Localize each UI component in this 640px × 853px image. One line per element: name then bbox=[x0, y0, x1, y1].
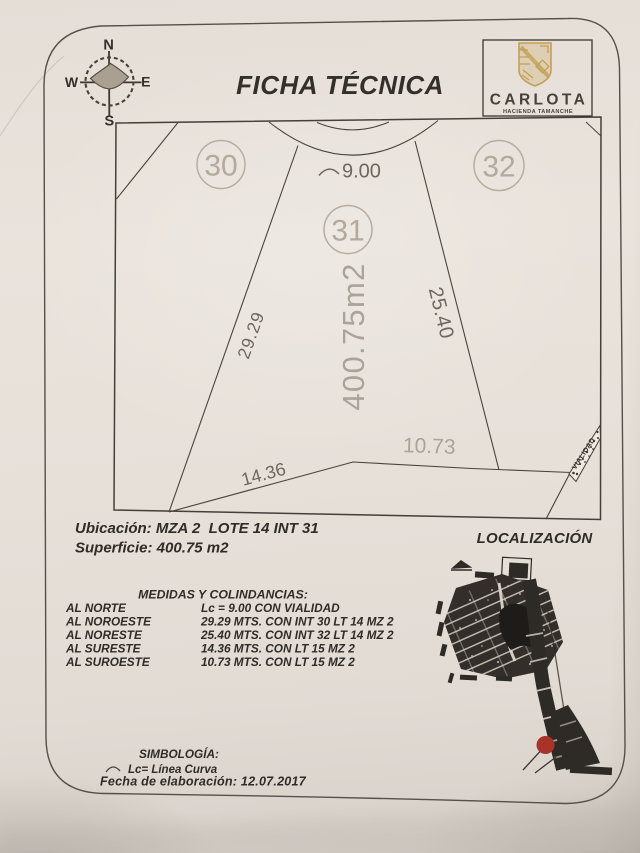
svg-text:25.40 MTS. CON INT 32 LT 14 MZ: 25.40 MTS. CON INT 32 LT 14 MZ 2 bbox=[200, 628, 394, 642]
svg-text:10.73: 10.73 bbox=[403, 434, 456, 459]
svg-text:Lc = 9.00 CON VIALIDAD: Lc = 9.00 CON VIALIDAD bbox=[201, 601, 340, 615]
svg-text:CARLOTA: CARLOTA bbox=[490, 92, 588, 109]
svg-text:10.73 MTS. CON LT 15 MZ 2: 10.73 MTS. CON LT 15 MZ 2 bbox=[201, 655, 355, 669]
svg-text:AL SUROESTE: AL SUROESTE bbox=[65, 655, 151, 669]
svg-text:W: W bbox=[65, 74, 79, 90]
svg-text:N: N bbox=[103, 38, 113, 54]
svg-text:30: 30 bbox=[204, 150, 237, 183]
svg-text:Fecha de elaboración: 12.07.20: Fecha de elaboración: 12.07.2017 bbox=[100, 775, 307, 789]
svg-text:AL NORTE: AL NORTE bbox=[65, 601, 127, 615]
svg-text:SIMBOLOGÍA:: SIMBOLOGÍA: bbox=[139, 747, 219, 761]
svg-text:31: 31 bbox=[331, 215, 364, 248]
svg-text:Superficie: 400.75 m2: Superficie: 400.75 m2 bbox=[75, 540, 229, 557]
svg-text:HACIENDA TAMANCHE: HACIENDA TAMANCHE bbox=[503, 109, 573, 115]
svg-text:32: 32 bbox=[482, 151, 515, 184]
svg-text:25.40: 25.40 bbox=[424, 285, 458, 341]
svg-text:14.36 MTS. CON LT 15 MZ 2: 14.36 MTS. CON LT 15 MZ 2 bbox=[201, 642, 355, 656]
svg-text:9.00: 9.00 bbox=[342, 161, 381, 183]
svg-text:AL NORESTE: AL NORESTE bbox=[65, 628, 143, 642]
svg-text:14.36: 14.36 bbox=[239, 459, 288, 490]
svg-text:LOCALIZACIÓN: LOCALIZACIÓN bbox=[477, 529, 594, 547]
svg-text:E: E bbox=[141, 74, 150, 90]
svg-text:AL SURESTE: AL SURESTE bbox=[65, 642, 142, 656]
svg-text:MEDIDAS Y COLINDANCIAS:: MEDIDAS Y COLINDANCIAS: bbox=[138, 588, 308, 602]
svg-text:S: S bbox=[104, 114, 114, 130]
svg-text:FICHA TÉCNICA: FICHA TÉCNICA bbox=[236, 70, 444, 100]
svg-text:AL NOROESTE: AL NOROESTE bbox=[65, 615, 152, 629]
svg-text:29.29 MTS. CON INT 30 LT 14 MZ: 29.29 MTS. CON INT 30 LT 14 MZ 2 bbox=[200, 615, 394, 629]
svg-text:Ubicación: MZA 2 LOTE 14 INT: Ubicación: MZA 2 LOTE 14 INT 31 bbox=[75, 520, 319, 537]
svg-text:29.29: 29.29 bbox=[233, 309, 268, 362]
svg-text:400.75m2: 400.75m2 bbox=[336, 262, 371, 410]
